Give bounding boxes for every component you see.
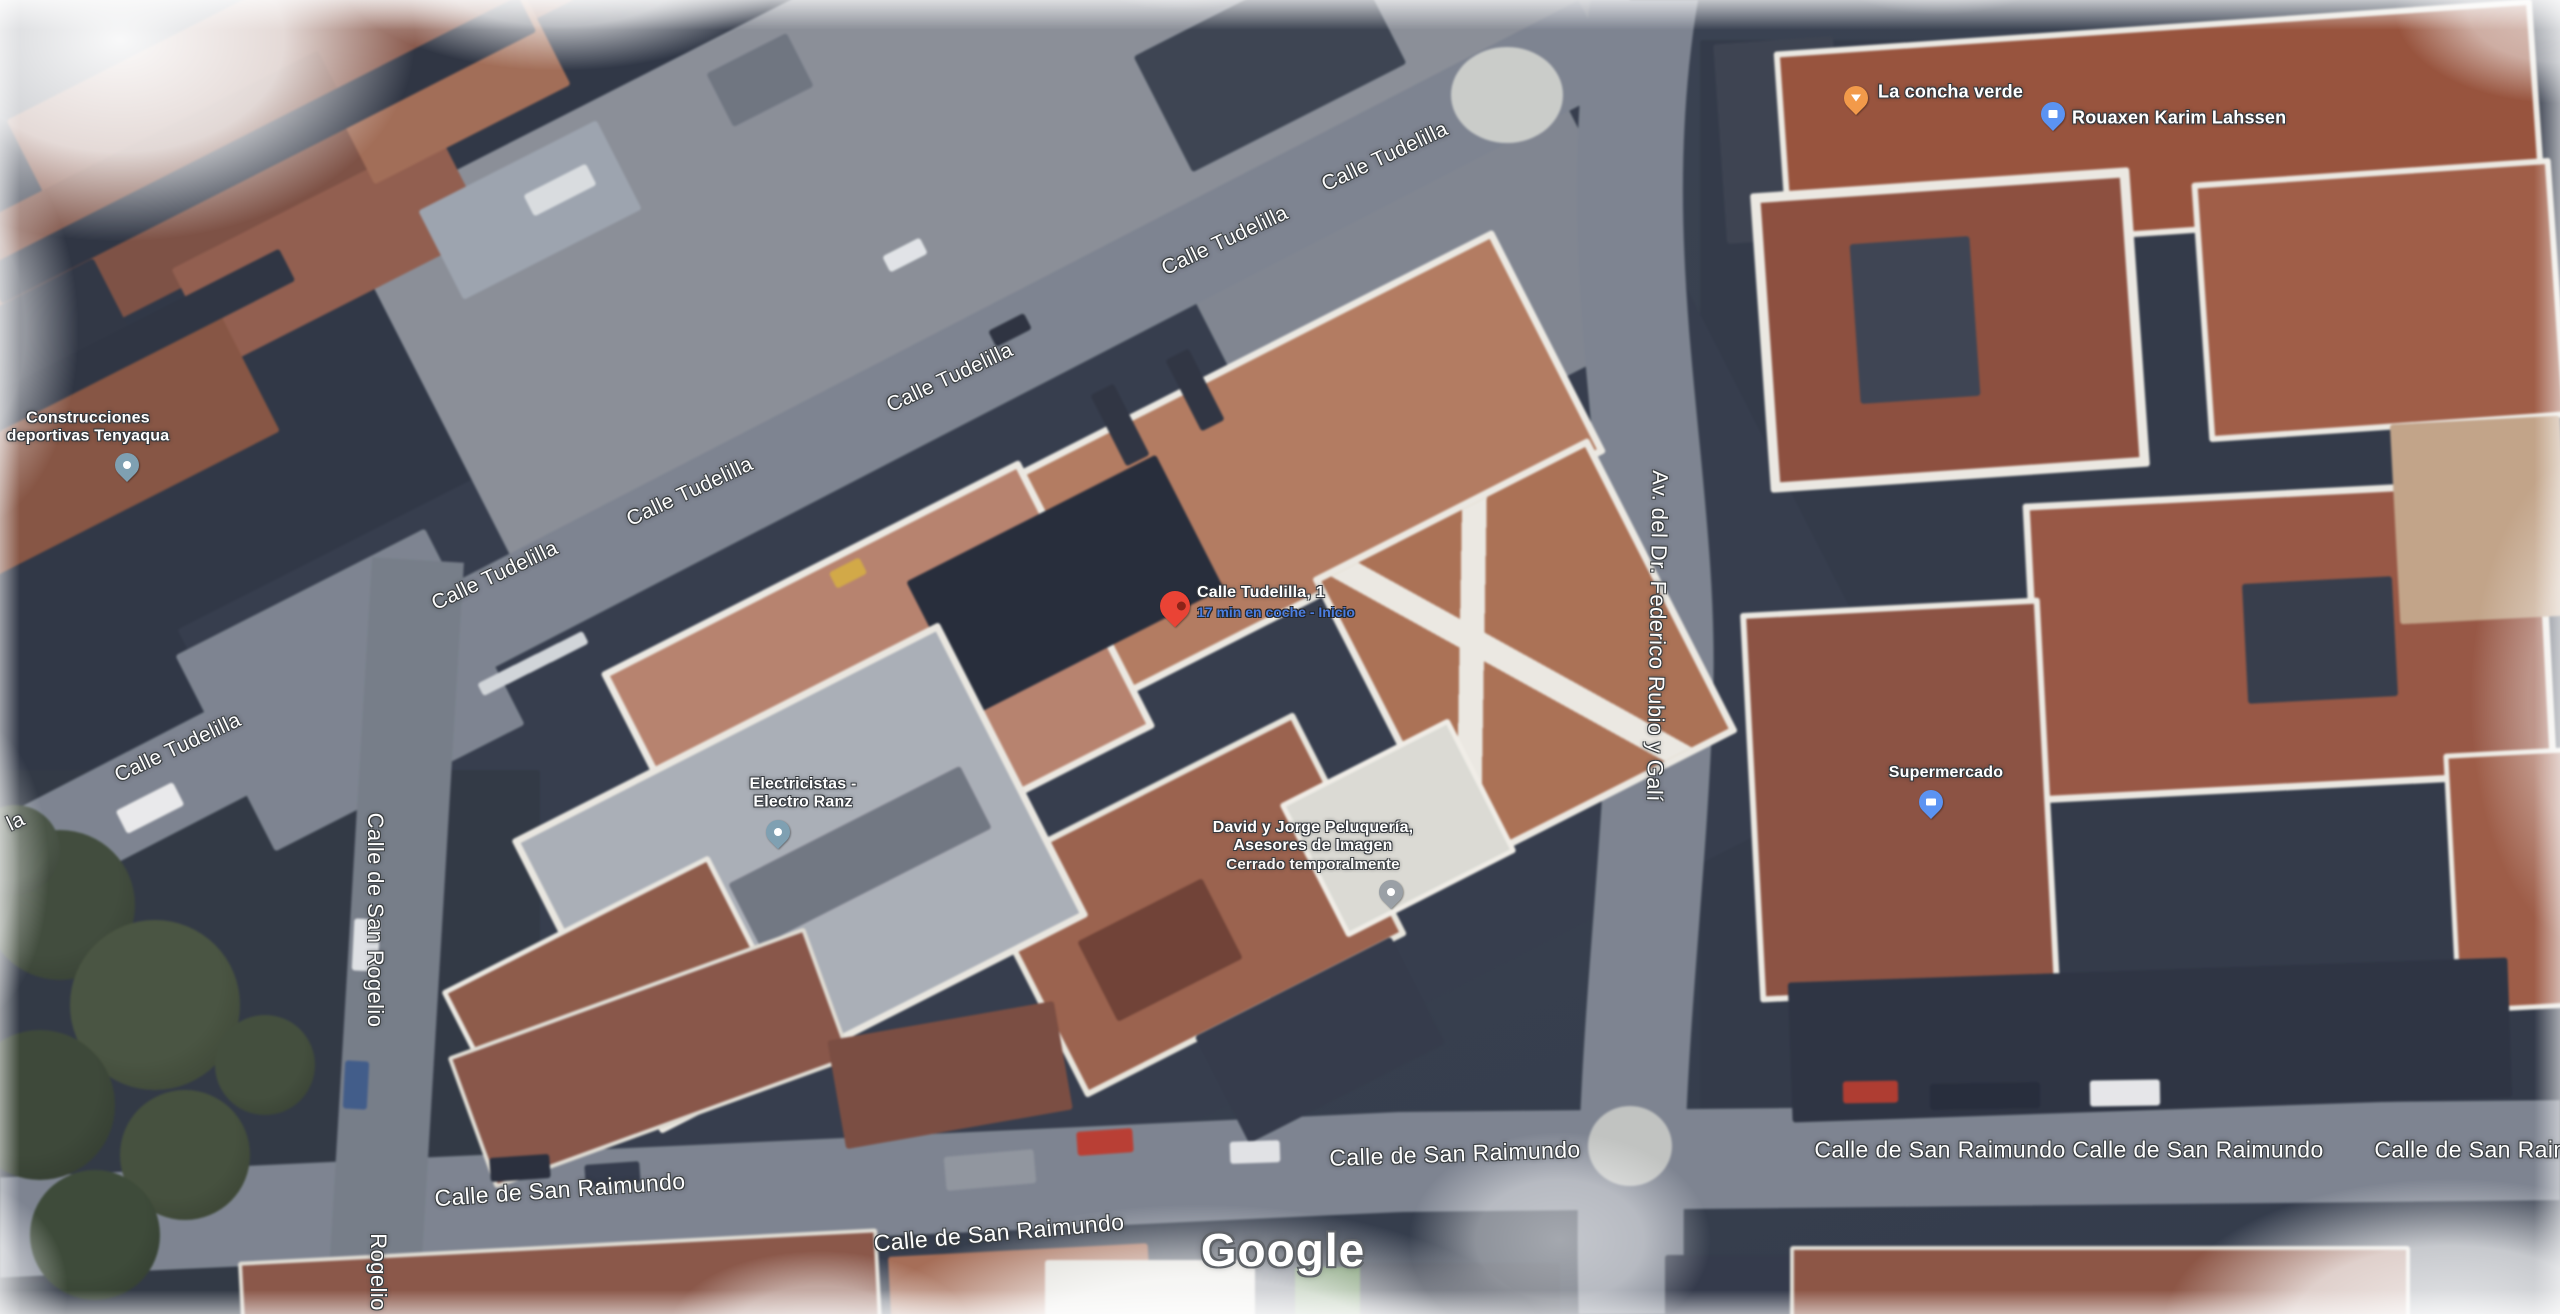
place-label-line: Electro Ranz — [749, 794, 856, 812]
place-label-line: Supermercado — [1889, 764, 2003, 782]
electricistas-electro-ranz-pin[interactable] — [761, 815, 795, 849]
street-label: Calle de San Rogelio — [362, 813, 388, 1028]
street-label: Calle de San Raimundo — [1814, 1137, 2065, 1164]
place-label-line: David y Jorge Peluquería, — [1213, 819, 1414, 837]
place-label-line: Construcciones — [7, 410, 170, 428]
destination-title: Calle Tudelilla, 1 — [1197, 584, 1355, 602]
place-label-line: La concha verde — [1878, 82, 2023, 103]
shopping-bag-icon — [2049, 110, 2058, 118]
david-y-jorge-peluqueria-label[interactable]: David y Jorge Peluquería,Asesores de Ima… — [1213, 819, 1414, 873]
street-label: Calle de San Raimundo — [2072, 1137, 2323, 1164]
street-label: Calle Tudelilla — [623, 452, 757, 532]
street-label: Calle de San Raimundo — [2374, 1137, 2560, 1164]
bar-icon — [1851, 95, 1861, 102]
la-concha-verde-label[interactable]: La concha verde — [1878, 82, 2023, 103]
street-label: Calle de San Raimundo — [1329, 1136, 1581, 1172]
generic-poi-icon — [774, 828, 782, 836]
google-watermark[interactable]: Google — [1201, 1223, 1365, 1277]
david-y-jorge-peluqueria-pin[interactable] — [1374, 875, 1408, 909]
satellite-map[interactable]: Calle TudelillaCalle TudelillaCalle Tude… — [0, 0, 2560, 1314]
street-label: Calle Tudelilla — [428, 536, 562, 616]
construcciones-deportivas-tenyaqua-label[interactable]: Construccionesdeportivas Tenyaqua — [7, 410, 170, 447]
street-label: Calle de San Raimundo — [873, 1209, 1126, 1258]
generic-poi-icon — [123, 461, 131, 469]
street-label: Av. del Dr. Federico Rubio y Galí — [1641, 470, 1673, 802]
street-label: Calle Tudelilla — [883, 338, 1017, 418]
electricistas-electro-ranz-label[interactable]: Electricistas -Electro Ranz — [749, 776, 856, 813]
place-status: Cerrado temporalmente — [1213, 856, 1414, 873]
supermercado-pin[interactable] — [1914, 785, 1948, 819]
place-label-line: Rouaxen Karim Lahssen — [2072, 108, 2286, 129]
supermercado-label[interactable]: Supermercado — [1889, 764, 2003, 782]
construcciones-deportivas-tenyaqua-pin[interactable] — [110, 448, 144, 482]
street-label: Rogelio — [365, 1233, 391, 1310]
rouaxen-karim-lahssen-label[interactable]: Rouaxen Karim Lahssen — [2072, 108, 2286, 129]
street-label: Calle Tudelilla — [1318, 117, 1452, 197]
destination-route-summary: 17 min en coche - Inicio — [1197, 604, 1355, 620]
destination-label[interactable]: Calle Tudelilla, 1 17 min en coche - Ini… — [1197, 584, 1355, 620]
generic-poi-icon — [1387, 888, 1395, 896]
place-label-line: Electricistas - — [749, 776, 856, 794]
cart-icon — [1926, 799, 1936, 806]
place-label-line: Asesores de Imagen — [1213, 837, 1414, 855]
street-label: Calle de San Raimundo — [434, 1168, 687, 1212]
rouaxen-karim-lahssen-pin[interactable] — [2036, 97, 2070, 131]
pin-dot-icon — [1175, 600, 1188, 613]
la-concha-verde-pin[interactable] — [1839, 81, 1873, 115]
street-label: Calle Tudelilla — [111, 708, 245, 788]
street-label: la — [3, 807, 29, 836]
labels-layer: Calle TudelillaCalle TudelillaCalle Tude… — [0, 0, 2560, 1314]
street-label: Calle Tudelilla — [1158, 201, 1292, 281]
place-label-line: deportivas Tenyaqua — [7, 428, 170, 446]
